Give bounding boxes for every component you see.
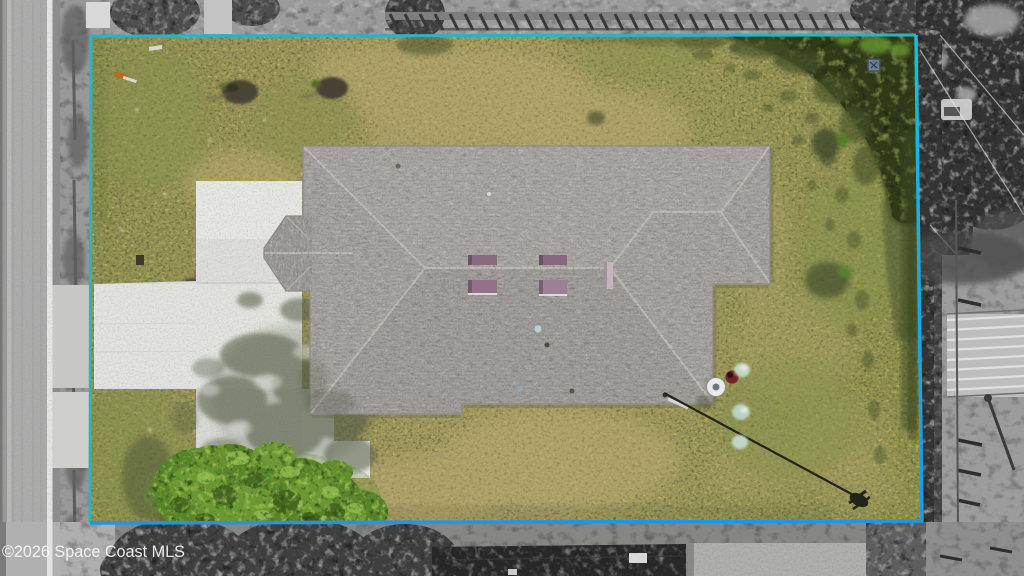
svg-text:©2026 Space Coast MLS: ©2026 Space Coast MLS <box>2 543 185 561</box>
